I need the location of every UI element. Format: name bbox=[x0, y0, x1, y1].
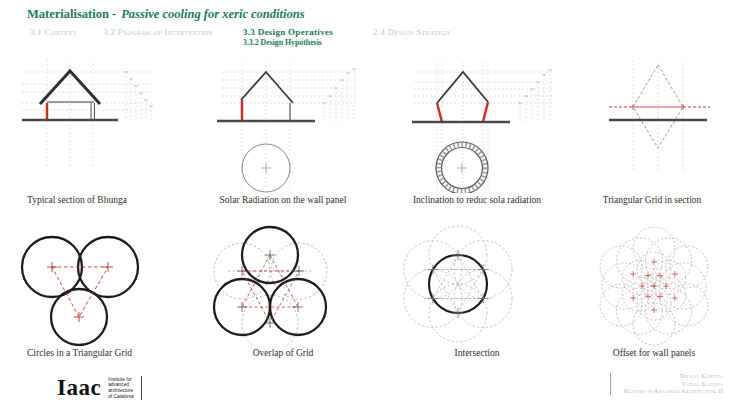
panel-triangular-grid-section: Triangular Grid in section bbox=[578, 58, 726, 205]
caption-intersection: Intersection bbox=[384, 348, 570, 358]
page-title: Materialisation -Passive cooling for xer… bbox=[27, 7, 305, 22]
logo-divider bbox=[141, 376, 142, 400]
circles-triangular-grid-diagram bbox=[10, 218, 185, 346]
offset-wall-panels-diagram bbox=[578, 218, 730, 346]
tab-design-operatives[interactable]: 3.3 Design Operatives bbox=[243, 27, 333, 37]
panel-inclination: Inclination to reduc sola radiation bbox=[384, 58, 570, 205]
caption-overlap-of-grid: Overlap of Grid bbox=[192, 348, 374, 358]
inclination-diagram bbox=[384, 58, 570, 193]
panel-bhunga-section: Typical section of Bhunga bbox=[10, 58, 185, 205]
credits-block: Dhaval Kanotia Vatsal Kapadia Masters in… bbox=[623, 373, 723, 396]
iaac-logo-text: Iaac bbox=[57, 377, 101, 399]
tab-design-hypothesis[interactable]: 3.3.2 Design Hypothesis bbox=[243, 38, 322, 47]
panel-overlap-of-grid: Overlap of Grid bbox=[192, 218, 374, 358]
iaac-logo: Iaac Institute for advanced architecture… bbox=[57, 376, 142, 400]
tab-context[interactable]: 3.1 Context bbox=[30, 27, 77, 37]
panel-intersection: Intersection bbox=[384, 218, 570, 358]
institute-line: of Catalonia bbox=[108, 394, 134, 400]
tab-program-of-intervention[interactable]: 3.2 Program of Intervention bbox=[103, 27, 213, 37]
overlap-of-grid-diagram bbox=[192, 218, 374, 346]
credit-program: Masters in Advanced Architecture II bbox=[623, 388, 723, 396]
triangular-grid-section-diagram bbox=[578, 58, 726, 193]
title-main: Materialisation - bbox=[27, 7, 116, 21]
caption-circles-triangular-grid: Circles in a Triangular Grid bbox=[10, 348, 185, 358]
intersection-diagram bbox=[384, 218, 570, 346]
caption-triangular-grid-section: Triangular Grid in section bbox=[578, 195, 726, 205]
caption-solar-radiation: Solar Radiation on the wall panel bbox=[192, 195, 374, 205]
credit-author-2: Vatsal Kapadia bbox=[623, 381, 723, 389]
caption-offset-wall-panels: Offset for wall panels bbox=[578, 348, 730, 358]
credits-divider bbox=[610, 373, 611, 395]
tab-design-strategy[interactable]: 2.4 Design Strategy bbox=[373, 27, 451, 37]
institute-name: Institute for advanced architecture of C… bbox=[108, 377, 134, 399]
panel-offset-wall-panels: Offset for wall panels bbox=[578, 218, 730, 358]
credit-author-1: Dhaval Kanotia bbox=[623, 373, 723, 381]
title-subtitle: Passive cooling for xeric conditions bbox=[121, 7, 304, 21]
caption-inclination: Inclination to reduc sola radiation bbox=[384, 195, 570, 205]
panel-solar-radiation: Solar Radiation on the wall panel bbox=[192, 58, 374, 205]
caption-bhunga-section: Typical section of Bhunga bbox=[10, 195, 185, 205]
panel-circles-triangular-grid: Circles in a Triangular Grid bbox=[10, 218, 185, 358]
solar-radiation-diagram bbox=[192, 58, 374, 193]
institute-line: architecture bbox=[108, 388, 134, 394]
bhunga-section-diagram bbox=[10, 58, 185, 193]
